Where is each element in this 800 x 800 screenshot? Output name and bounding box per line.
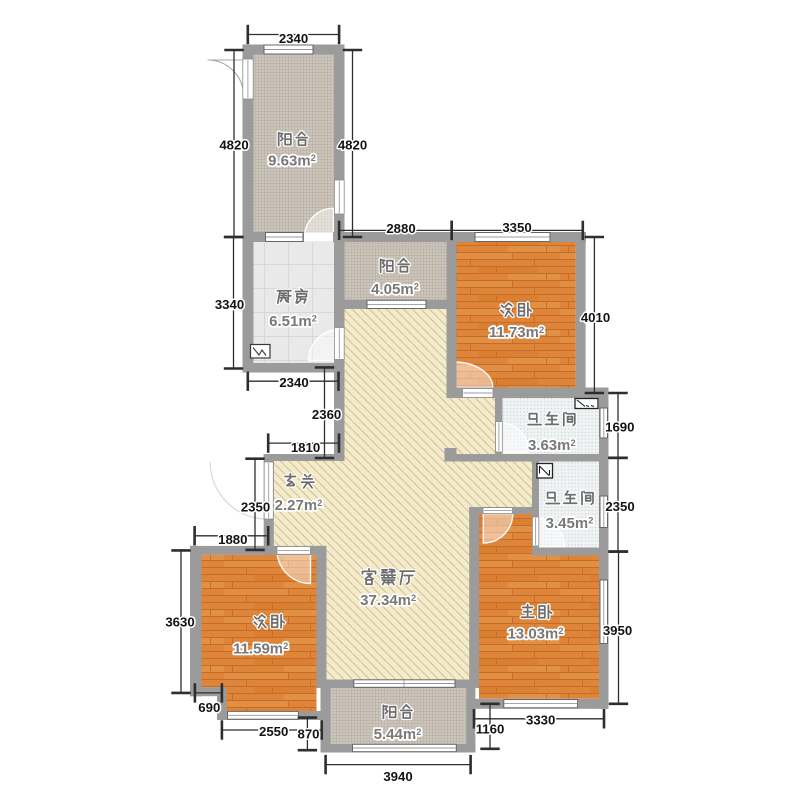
- svg-text:2360: 2360: [312, 407, 341, 422]
- svg-text:2.27m2: 2.27m2: [275, 497, 323, 514]
- svg-text:3350: 3350: [502, 220, 531, 235]
- svg-text:2550: 2550: [259, 724, 288, 739]
- svg-text:6.51m2: 6.51m2: [269, 313, 317, 330]
- svg-text:690: 690: [198, 700, 220, 715]
- svg-text:1160: 1160: [476, 721, 505, 736]
- svg-text:37.34m2: 37.34m2: [360, 592, 416, 609]
- svg-text:3.45m2: 3.45m2: [546, 515, 594, 532]
- svg-text:11.73m2: 11.73m2: [489, 324, 544, 341]
- svg-text:2350: 2350: [605, 499, 634, 514]
- svg-text:870: 870: [297, 726, 319, 741]
- svg-text:2340: 2340: [279, 31, 308, 46]
- svg-text:3330: 3330: [526, 712, 555, 727]
- svg-text:3340: 3340: [215, 297, 244, 312]
- svg-text:4010: 4010: [581, 310, 610, 325]
- svg-text:9.63m2: 9.63m2: [268, 152, 316, 169]
- svg-text:3940: 3940: [383, 769, 412, 784]
- svg-text:13.03m2: 13.03m2: [507, 625, 563, 642]
- svg-text:11.59m2: 11.59m2: [233, 640, 288, 657]
- svg-text:5.44m2: 5.44m2: [374, 726, 422, 743]
- svg-text:3630: 3630: [165, 614, 194, 629]
- svg-text:4820: 4820: [338, 138, 367, 153]
- svg-text:4820: 4820: [219, 138, 248, 153]
- svg-text:1810: 1810: [291, 440, 320, 455]
- svg-text:3950: 3950: [603, 623, 632, 638]
- svg-text:2880: 2880: [386, 221, 415, 236]
- svg-text:2350: 2350: [241, 500, 270, 515]
- svg-text:1690: 1690: [605, 420, 634, 435]
- svg-text:4.05m2: 4.05m2: [371, 281, 419, 298]
- svg-text:1880: 1880: [218, 532, 247, 547]
- svg-text:2340: 2340: [279, 375, 308, 390]
- svg-text:3.63m2: 3.63m2: [528, 437, 576, 454]
